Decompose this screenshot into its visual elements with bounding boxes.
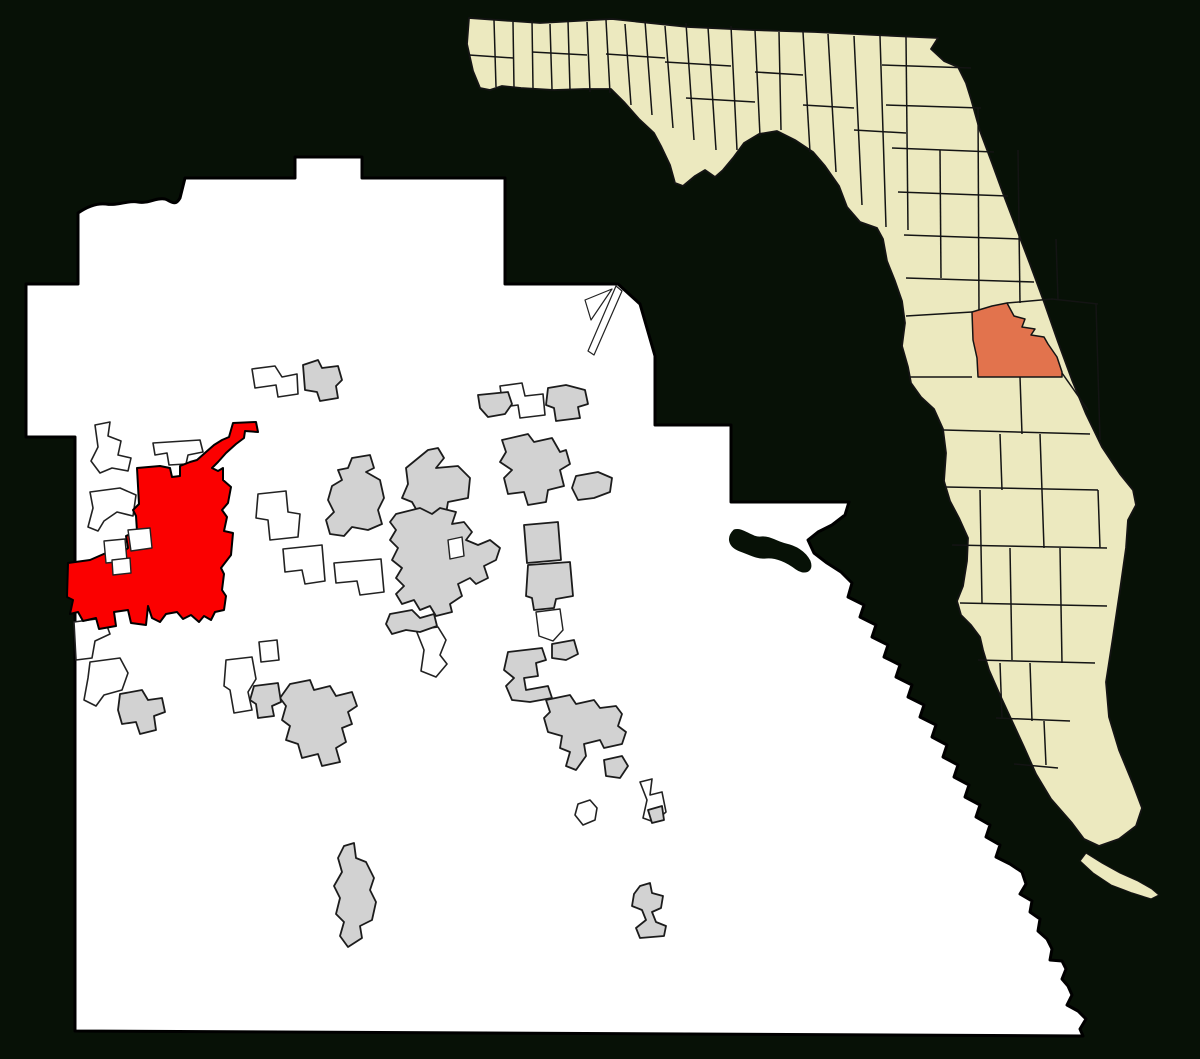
inset-county-line (513, 22, 514, 88)
inset-county-line (532, 20, 533, 88)
map-canvas (0, 0, 1200, 1059)
inset-county-line (940, 150, 941, 278)
enclave-01 (448, 537, 464, 559)
locator-map-page (0, 0, 1200, 1059)
enclave-04 (112, 558, 131, 575)
enclave-02 (128, 528, 152, 551)
outlined-area-13 (259, 640, 279, 662)
incorporated-area-09 (524, 522, 561, 563)
inset-county-line (978, 108, 979, 312)
incorporated-area-21 (648, 806, 664, 823)
